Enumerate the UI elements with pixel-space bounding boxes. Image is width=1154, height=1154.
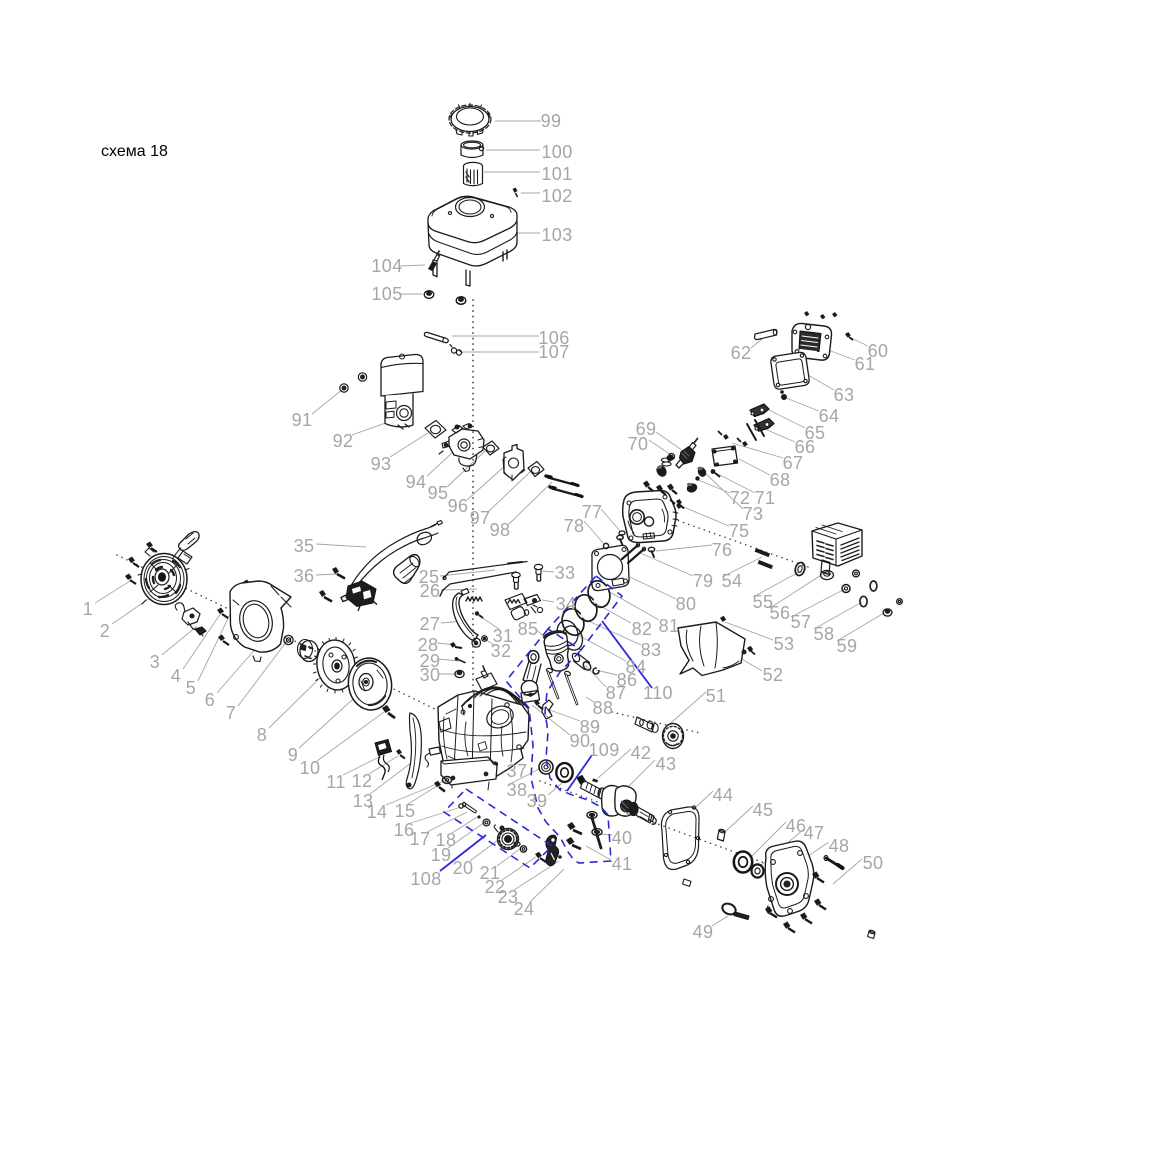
svg-text:26: 26 bbox=[420, 581, 441, 601]
svg-text:42: 42 bbox=[631, 743, 652, 763]
svg-text:14: 14 bbox=[367, 802, 388, 822]
svg-text:95: 95 bbox=[428, 483, 449, 503]
svg-text:37: 37 bbox=[507, 761, 528, 781]
svg-text:20: 20 bbox=[453, 858, 474, 878]
svg-text:41: 41 bbox=[612, 854, 633, 874]
svg-text:59: 59 bbox=[837, 636, 858, 656]
svg-text:107: 107 bbox=[538, 342, 569, 362]
svg-text:104: 104 bbox=[371, 256, 402, 276]
svg-text:70: 70 bbox=[628, 434, 649, 454]
svg-text:8: 8 bbox=[257, 725, 267, 745]
svg-text:102: 102 bbox=[541, 186, 572, 206]
svg-text:98: 98 bbox=[490, 520, 511, 540]
svg-text:75: 75 bbox=[729, 521, 750, 541]
svg-text:32: 32 bbox=[491, 641, 512, 661]
svg-text:53: 53 bbox=[774, 634, 795, 654]
svg-text:47: 47 bbox=[804, 823, 825, 843]
svg-text:52: 52 bbox=[763, 665, 784, 685]
svg-text:91: 91 bbox=[292, 410, 313, 430]
svg-text:2: 2 bbox=[100, 621, 110, 641]
svg-text:62: 62 bbox=[731, 343, 752, 363]
svg-text:90: 90 bbox=[570, 731, 591, 751]
svg-text:56: 56 bbox=[770, 603, 791, 623]
svg-text:10: 10 bbox=[300, 758, 321, 778]
svg-text:78: 78 bbox=[564, 516, 585, 536]
svg-text:96: 96 bbox=[448, 496, 469, 516]
svg-text:5: 5 bbox=[186, 678, 196, 698]
svg-text:108: 108 bbox=[410, 869, 441, 889]
svg-text:43: 43 bbox=[656, 754, 677, 774]
svg-text:6: 6 bbox=[205, 690, 215, 710]
svg-text:109: 109 bbox=[588, 740, 619, 760]
svg-text:12: 12 bbox=[352, 771, 373, 791]
svg-text:50: 50 bbox=[863, 853, 884, 873]
svg-text:11: 11 bbox=[326, 772, 346, 792]
svg-text:85: 85 bbox=[518, 619, 539, 639]
svg-text:24: 24 bbox=[514, 899, 535, 919]
svg-text:97: 97 bbox=[470, 508, 491, 528]
svg-text:40: 40 bbox=[612, 828, 633, 848]
svg-text:38: 38 bbox=[507, 780, 528, 800]
svg-text:45: 45 bbox=[753, 800, 774, 820]
svg-text:94: 94 bbox=[406, 472, 427, 492]
svg-text:93: 93 bbox=[371, 454, 392, 474]
svg-text:88: 88 bbox=[593, 698, 614, 718]
svg-text:30: 30 bbox=[420, 665, 441, 685]
svg-text:61: 61 bbox=[855, 354, 876, 374]
svg-text:63: 63 bbox=[834, 385, 855, 405]
svg-text:80: 80 bbox=[676, 594, 697, 614]
svg-text:51: 51 bbox=[706, 686, 727, 706]
svg-text:17: 17 bbox=[410, 829, 431, 849]
svg-text:92: 92 bbox=[333, 431, 354, 451]
svg-text:1: 1 bbox=[83, 599, 93, 619]
svg-text:4: 4 bbox=[171, 666, 181, 686]
svg-text:44: 44 bbox=[713, 785, 734, 805]
svg-text:49: 49 bbox=[693, 922, 714, 942]
svg-text:58: 58 bbox=[814, 624, 835, 644]
svg-text:81: 81 bbox=[659, 616, 680, 636]
svg-text:33: 33 bbox=[555, 563, 576, 583]
svg-text:77: 77 bbox=[582, 502, 603, 522]
svg-text:99: 99 bbox=[541, 111, 562, 131]
svg-text:34: 34 bbox=[556, 594, 577, 614]
svg-text:79: 79 bbox=[693, 571, 714, 591]
svg-text:15: 15 bbox=[395, 801, 416, 821]
svg-text:9: 9 bbox=[288, 745, 298, 765]
svg-text:54: 54 bbox=[722, 571, 743, 591]
svg-text:82: 82 bbox=[632, 619, 653, 639]
svg-text:39: 39 bbox=[527, 791, 548, 811]
svg-text:схема 18: схема 18 bbox=[101, 143, 168, 160]
svg-text:101: 101 bbox=[541, 164, 572, 184]
svg-text:36: 36 bbox=[294, 566, 315, 586]
svg-text:48: 48 bbox=[829, 836, 850, 856]
svg-text:3: 3 bbox=[150, 652, 160, 672]
svg-text:76: 76 bbox=[712, 540, 733, 560]
svg-text:19: 19 bbox=[431, 845, 452, 865]
svg-text:68: 68 bbox=[770, 470, 791, 490]
svg-text:103: 103 bbox=[541, 225, 572, 245]
svg-text:105: 105 bbox=[371, 284, 402, 304]
svg-text:7: 7 bbox=[226, 703, 236, 723]
svg-text:57: 57 bbox=[791, 612, 812, 632]
svg-text:100: 100 bbox=[541, 142, 572, 162]
svg-text:35: 35 bbox=[294, 536, 315, 556]
svg-text:110: 110 bbox=[643, 683, 673, 703]
svg-text:27: 27 bbox=[420, 614, 441, 634]
